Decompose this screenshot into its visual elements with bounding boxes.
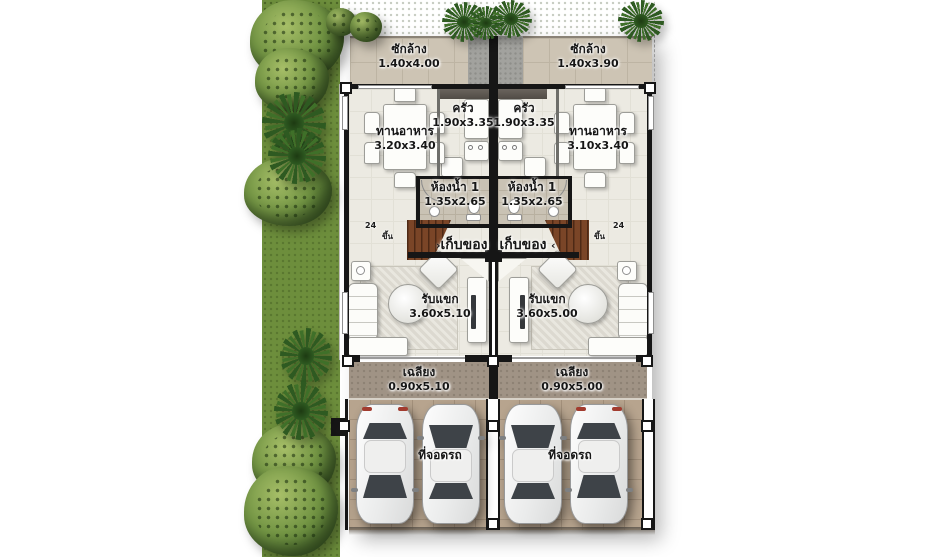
car-rear-window [429,483,473,499]
party-wall-porch [489,362,498,400]
stove-left [464,141,489,161]
chair-icon [584,172,606,188]
car-icon [504,404,562,524]
column-post [338,420,350,432]
carport-right-post-strip [642,399,655,530]
palm-icon [268,128,326,184]
car-icon [422,404,480,524]
mirror-icon [478,436,485,440]
lamp-icon [622,266,631,275]
laundry-left-label: ซักล้าง1.40x4.00 [354,42,464,70]
column-post [342,355,354,367]
column-post [487,355,499,367]
laundry-right-label: ซักล้าง1.40x3.90 [533,42,643,70]
car-icon [356,404,414,524]
palm-icon [490,0,532,38]
column-post [487,420,499,432]
tree-icon [244,466,338,556]
column-post [641,518,653,530]
tail-light-icon [576,407,586,411]
party-wall-upper [489,36,498,262]
mirror-icon [417,436,424,440]
bush-icon [350,12,382,42]
bathroom-left-bottom-wall [416,224,492,228]
window-icon [648,292,654,334]
stove-right [498,141,523,161]
column-post [340,82,352,94]
mirror-icon [499,436,506,440]
mirror-icon [626,488,633,492]
car-windshield [363,475,407,498]
toilet-icon [466,214,481,221]
car-rear-window [363,423,407,439]
front-wall-left-center [465,355,489,362]
lamp-icon [356,266,365,275]
sliding-door-left [360,357,465,359]
window-icon [565,85,639,89]
kitchen-appliance [524,157,546,177]
car-rear-window [511,483,555,499]
sofa-left-chaise [348,337,408,356]
mirror-icon [560,436,567,440]
stair-up-right-label: ขึ้น [594,230,605,243]
kitchen-counter-right [498,89,547,99]
floor-plan-canvas: ซักล้าง1.40x4.00 ซักล้าง1.40x3.90 ครัว1.… [0,0,940,557]
bathroom-right-label: ห้องน้ำ 11.35x2.65 [477,180,587,208]
bathroom-right-top-wall [496,176,572,179]
stair-arrow-left: › [436,239,441,252]
column-post [641,355,653,367]
carport-center-post-strip [486,399,500,530]
porch-right-label: เฉลียง0.90x5.00 [517,365,627,393]
tail-light-icon [398,407,408,411]
car-windshield [511,425,555,448]
burner-icon [478,145,483,150]
mark-right: 24 [613,221,624,230]
column-post [644,82,656,94]
tail-light-icon [362,407,372,411]
mirror-icon [412,488,419,492]
carport-left-edge-wall [345,399,348,530]
burner-icon [512,145,517,150]
bathroom-right-bottom-wall [496,224,572,228]
toilet-icon [507,214,522,221]
roof-overhang-dashed-line [654,30,655,86]
roof-overhang-line-left [339,84,340,360]
storage-right-label: เก็บของ [468,237,578,254]
car-icon [570,404,628,524]
palm-icon [280,328,332,384]
dining-left-label: ทานอาหาร3.20x3.40 [350,124,460,152]
stair-arrow-right: ‹ [551,239,556,252]
burner-icon [502,145,507,150]
bathroom-left-top-wall [416,176,492,179]
window-icon [358,85,432,89]
living-right-label: รับแขก3.60x5.00 [492,292,602,320]
living-left-label: รับแขก3.60x5.10 [385,292,495,320]
column-post [641,420,653,432]
palm-icon [274,382,328,440]
stair-up-left-label: ขึ้น [382,230,393,243]
front-wall-right-center [498,355,512,362]
sofa-right-chaise [588,337,648,356]
porch-left-label: เฉลียง0.90x5.10 [364,365,474,393]
kitchen-counter-left [440,89,489,99]
tail-light-icon [612,407,622,411]
carport-edge-shadow [349,527,655,535]
dining-right-label: ทานอาหาร3.10x3.40 [543,124,653,152]
car-windshield [577,475,621,498]
mirror-icon [565,488,572,492]
window-icon [342,292,348,334]
palm-icon [618,0,664,42]
carport-left-label: ที่จอดรถ [385,448,495,463]
sofa-right [618,283,648,340]
car-windshield [429,425,473,448]
carport-right-label: ที่จอดรถ [515,448,625,463]
burner-icon [468,145,473,150]
mirror-icon [351,488,358,492]
column-post [487,518,499,530]
car-rear-window [577,423,621,439]
window-icon [342,96,348,130]
mark-left: 24 [365,221,376,230]
sofa-left [348,283,378,340]
sliding-door-right [512,357,636,359]
